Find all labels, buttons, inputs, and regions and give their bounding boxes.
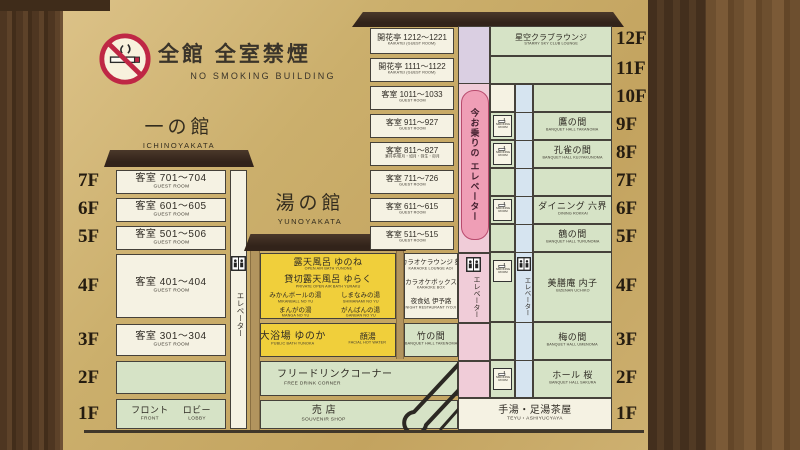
roof-tower [352,12,624,27]
front-label: フロント FRONT [131,405,169,422]
smoking-room-box-9f: SMOKING ROOM [493,115,512,137]
floor-label-right-9f: 9F [616,114,637,136]
bath-block-4f: 露天風呂 ゆのね OPEN AIR BATH YUNONE 貸切露天風呂 ゆらく… [260,253,396,319]
karaoke-lounge-label: カラオケラウンジ 葵 KARAOKE LOUNGE AOI [404,259,458,273]
room-cell-301-304: 客室 301～304 GUEST ROOM [116,324,226,356]
floor-label-left-3f: 3F [78,329,99,351]
ichinoyakata-title-jp: 一の館 [116,112,242,139]
floor-label-left-7f: 7F [78,170,99,192]
floor-label-left-5f: 5F [78,226,99,248]
blue-floorline [516,168,532,169]
building-title-yunoyakata: 湯の館 YUNOYAKATA [256,188,364,226]
no-smoking-title: 全館 全室禁煙 [158,38,368,68]
roof-ichinoyakata [104,150,254,167]
blue-floorline [516,196,532,197]
floor-label-right-3f: 3F [616,329,637,351]
pink-column-floorline-2f [459,360,489,362]
floor-label-left-2f: 2F [78,367,99,389]
elevator-icon [466,257,481,272]
no-smoking-subtitle: NO SMOKING BUILDING [158,71,368,81]
pink-column-floorline-4f [459,252,489,254]
yunoyakata-title-jp: 湯の館 [256,188,364,215]
smoking-room-box-6f: SMOKING ROOM [493,199,512,221]
floor-guide-sign-photo: 全館 全室禁煙 NO SMOKING BUILDING 7F 6F 5F 4F … [0,0,800,450]
wall-right-yunoyakata [396,251,404,359]
elevator-icon [517,257,531,271]
wall-left-yunoyakata [250,251,260,430]
smoking-room-box-4f: SMOKING ROOM [493,260,512,282]
yunoyakata-title-en: YUNOYAKATA [256,217,364,226]
floor-label-right-1f: 1F [616,403,637,425]
room-cell-1111-1122: 開花亭 1111～1122 KAIKATEI (GUEST ROOM) [370,58,454,82]
dining-rokkai-cell: ダイニング 六界 DINING ROKKAI [533,196,612,224]
smoking-room-box-2f: SMOKING ROOM [493,368,512,390]
elevator-shaft-right [515,84,533,398]
floor-label-right-8f: 8F [616,142,637,164]
floor-label-right-5f: 5F [616,226,637,248]
service-cell-3f [490,322,515,360]
tower-11f-empty-cell [490,56,612,84]
banquet-takanoma-cell: 鷹の間 BANQUET HALL TAKANOMA [533,112,612,140]
banquet-kujyakunoma-cell: 孔雀の間 BANQUET HALL KUJYAKUNOMA [533,140,612,168]
room-cell-711-726: 客室 711～726 GUEST ROOM [370,170,454,194]
starry-sky-lounge-cell: 星空クラブラウンジ STARRY SKY CLUB LOUNGE [490,26,612,56]
wood-frame-top-corner [0,0,110,11]
current-elevator-column-top [458,26,490,84]
blue-floorline [516,224,532,225]
blue-floorline [516,140,532,141]
tower-7f-empty-cell [533,168,612,196]
wood-frame-right-inner [648,0,706,450]
blue-floorline [516,252,532,253]
room-cell-701-704: 客室 701～704 GUEST ROOM [116,170,226,194]
night-restaurant-label: 夜食処 伊予路 NIGHT RESTAURANT IYOJI [404,298,458,312]
bath-item-mikanball: みかんボールの湯 MIKANBALL NO YU まんがの湯 MANGA NO … [267,292,324,319]
bath-item-shimanami: しまなみの湯 SHIMANAMI NO YU がんばんの湯 GANBAN NO … [332,292,390,319]
room-cell-611-615: 客室 611～615 GUEST ROOM [370,198,454,222]
lobby-label: ロビー LOBBY [183,405,211,422]
floor-label-left-1f: 1F [78,403,99,425]
room-cell-1011-1033: 客室 1011～1033 GUEST ROOM [370,86,454,110]
room-cell-401-404: 客室 401～404 GUEST ROOM [116,254,226,318]
service-cell-5f [490,224,515,252]
left-2f-empty-cell [116,361,226,394]
smoking-room-box-8f: SMOKING ROOM [493,143,512,165]
front-lobby-cell: フロント FRONT ロビー LOBBY [116,399,226,429]
blue-floorline [516,360,532,361]
tower-10f-empty-cell [533,84,612,112]
floor-label-right-11f: 11F [616,58,646,80]
floor-label-right-12f: 12F [616,28,647,50]
floor-label-right-6f: 6F [616,198,637,220]
public-bath-cell: 大浴場 ゆのか PUBLIC BATH YUNOKA 顔湯 FACIAL HOT… [260,323,396,357]
room-cell-911-927: 客室 911～927 GUEST ROOM [370,114,454,138]
current-elevator-capsule: 今お乗りの エレベーター [461,90,489,240]
karaoke-box-label: カラオケボックス KARAOKE BOX [405,279,457,293]
elevator-label-blue: エレベーター [517,273,531,319]
floor-label-right-4f: 4F [616,275,637,297]
wood-frame-left [0,0,63,450]
banquet-turunoma-cell: 鶴の間 BANQUET HALL TURUNOMA [533,224,612,252]
hall-sakura-cell: ホール 桜 BANQUET HALL SAKURA [533,360,612,398]
ichinoyakata-title-en: ICHINOYAKATA [116,141,242,150]
service-cell-10f [490,84,515,112]
ground-line [84,430,644,433]
room-cell-511-515: 客室 511～515 GUEST ROOM [370,226,454,250]
banquet-umenoma-cell: 梅の間 BANQUET HALL UMENOMA [533,322,612,360]
floor-label-right-10f: 10F [616,86,647,108]
floor-label-left-4f: 4F [78,275,99,297]
bath-list: みかんボールの湯 MIKANBALL NO YU まんがの湯 MANGA NO … [267,292,390,319]
elevator-label-pink: エレベーター [466,275,481,319]
karaoke-cell: カラオケラウンジ 葵 KARAOKE LOUNGE AOI カラオケボックス K… [404,253,458,319]
no-smoking-text: 全館 全室禁煙 NO SMOKING BUILDING [158,38,368,81]
room-cell-601-605: 客室 601～605 GUEST ROOM [116,198,226,222]
wood-frame-right-outer [706,0,800,450]
room-cell-811-827: 客室 811～827 湊月亭/睦月・如月・弥生・卯月 [370,142,454,166]
room-cell-501-506: 客室 501～506 GUEST ROOM [116,226,226,250]
elevator-icon [231,256,246,271]
building-title-ichinoyakata: 一の館 ICHINOYAKATA [116,112,242,150]
no-smoking-icon [98,32,152,86]
elevator-label-left: エレベーター [231,274,246,354]
teyu-ashiyu-cell: 手湯・足湯茶屋 TEYU・ASHIYUCYAYA [458,398,612,430]
floor-label-right-7f: 7F [616,170,637,192]
blue-floorline [516,112,532,113]
floor-label-right-2f: 2F [616,367,637,389]
floor-label-left-6f: 6F [78,198,99,220]
bizenan-uchiko-cell: 美膳庵 内子 BIZENAN UCHIKO [533,252,612,322]
room-cell-1212-1221: 開花亭 1212～1221 KAIKATEI (GUEST ROOM) [370,28,454,54]
blue-floorline [516,322,532,323]
public-bath-label: 大浴場 ゆのか PUBLIC BATH YUNOKA [260,331,327,349]
pink-column-floorline-3f [459,322,489,324]
service-cell-7f [490,168,515,196]
